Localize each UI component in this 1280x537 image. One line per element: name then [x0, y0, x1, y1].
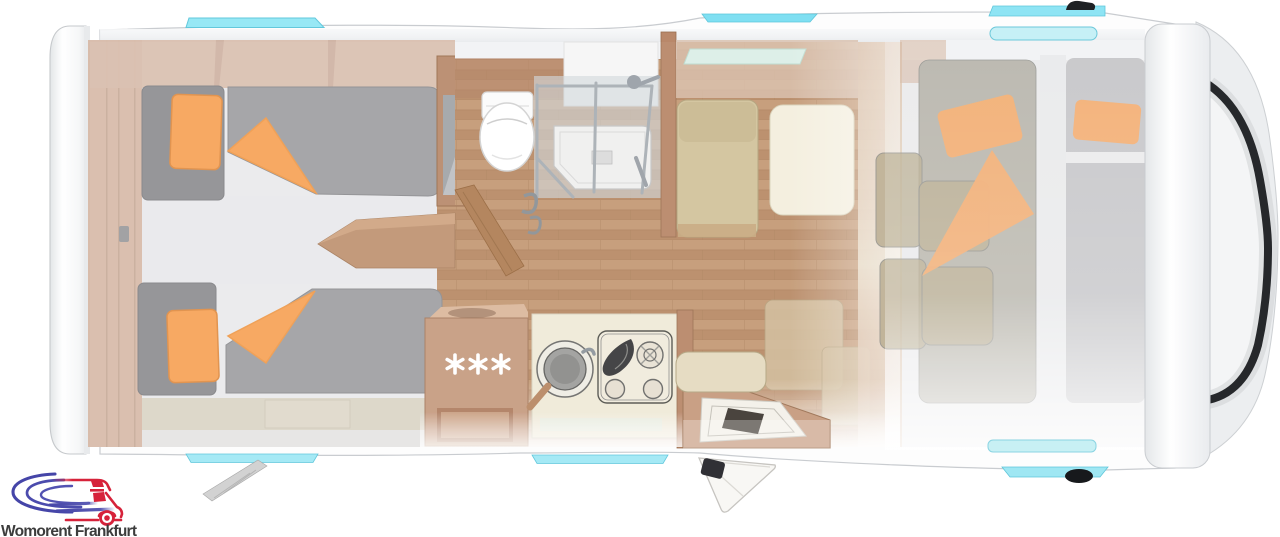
- svg-text:Womorent Frankfurt: Womorent Frankfurt: [1, 523, 137, 537]
